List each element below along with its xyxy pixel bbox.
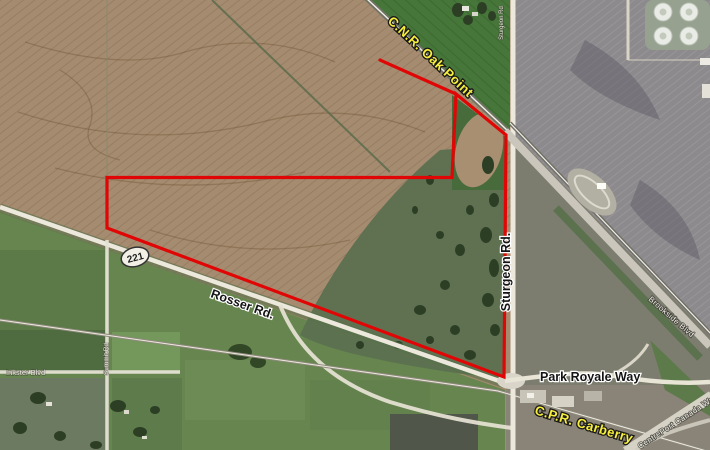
label-inkster-blvd: Inkster Blvd bbox=[6, 368, 45, 377]
label-sturgeon-road: Sturgeon Rd. bbox=[499, 233, 513, 311]
label-summit-road: Summit Rd bbox=[103, 343, 110, 376]
storage-tank-farm bbox=[645, 0, 710, 50]
map-canvas[interactable]: C.N.R. Oak Point C.P.R. Carberry Sturgeo… bbox=[0, 0, 710, 450]
weigh-station-building bbox=[597, 183, 606, 189]
satellite-map[interactable]: C.N.R. Oak Point C.P.R. Carberry Sturgeo… bbox=[0, 0, 710, 450]
label-park-royale-way: Park Royale Way bbox=[540, 370, 640, 384]
label-sturgeon-road-small: Sturgeon Rd bbox=[499, 6, 505, 40]
